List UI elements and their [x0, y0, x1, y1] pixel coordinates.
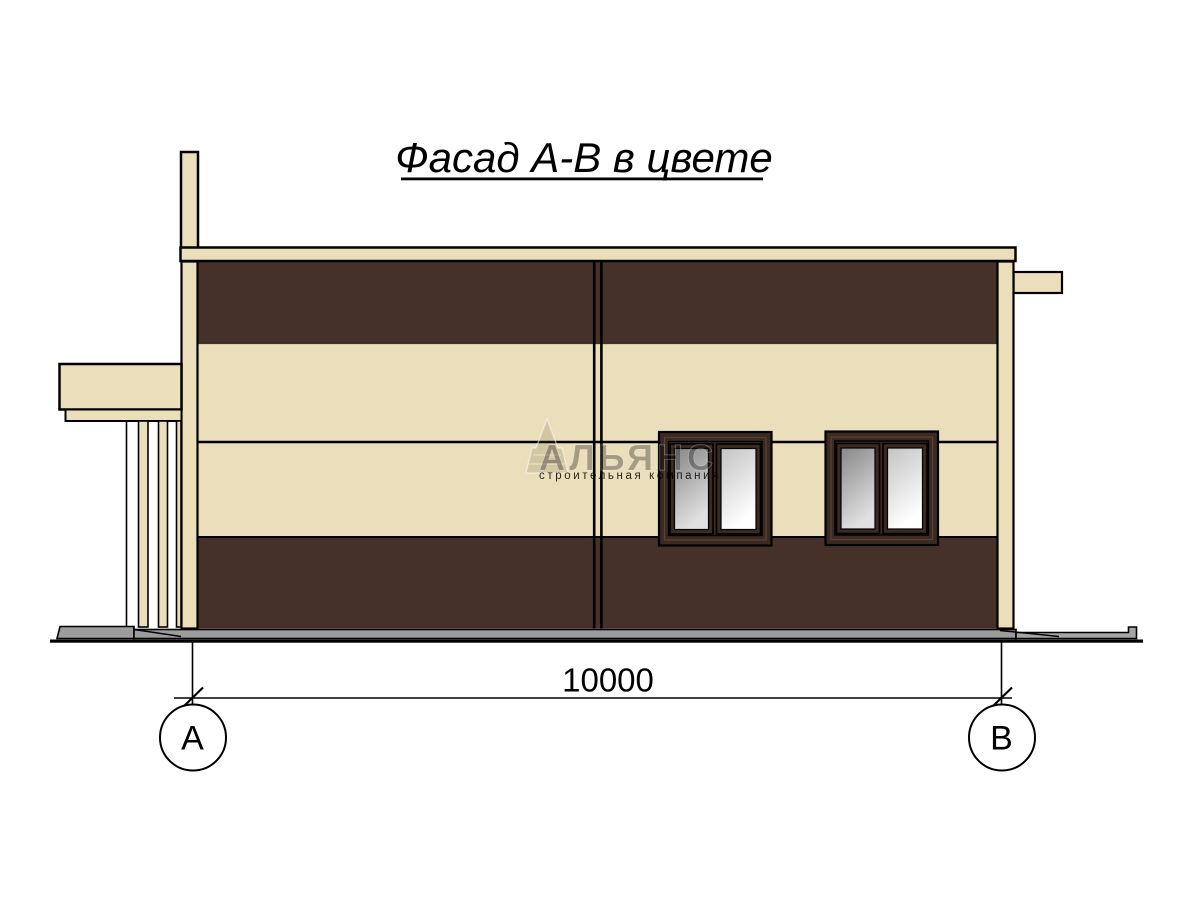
corner-post-right — [998, 262, 1014, 629]
drawing-title-underline — [401, 178, 763, 181]
canopy-slab — [60, 364, 182, 410]
wall-panel-brown-top — [198, 262, 999, 344]
window-glass-right — [888, 448, 923, 529]
facade-drawing-canvas: Фасад А-В в цвете — [0, 0, 1200, 900]
window-glass-right — [721, 449, 756, 530]
window-glass-left — [841, 448, 875, 529]
slat — [177, 421, 182, 627]
axis-marker-a: А — [160, 705, 226, 771]
roof-beam-right — [1014, 272, 1063, 293]
slat — [159, 421, 168, 627]
foundation — [50, 627, 1143, 643]
wall-panel-brown-bottom — [198, 537, 999, 629]
watermark-tagline-text: строительная компания — [539, 470, 721, 482]
canopy-fascia-strip — [66, 410, 182, 422]
window-right — [826, 432, 939, 546]
dimension-value: 10000 — [562, 662, 654, 699]
axis-marker-b: В — [969, 705, 1035, 771]
chimney — [181, 152, 198, 252]
foundation-left-block — [57, 627, 134, 639]
facade-drawing-page: Фасад А-В в цвете — [0, 0, 1200, 900]
ground-line — [50, 640, 1143, 643]
foundation-main-band — [134, 630, 1016, 639]
drawing-title: Фасад А-В в цвете — [395, 134, 773, 181]
slat — [139, 421, 149, 627]
corner-post-left — [182, 262, 198, 629]
roof-fascia — [181, 248, 1016, 262]
axis-label-a: А — [181, 720, 204, 758]
axis-label-b: В — [990, 720, 1013, 758]
drawing-title-text: Фасад А-В в цвете — [395, 134, 773, 181]
